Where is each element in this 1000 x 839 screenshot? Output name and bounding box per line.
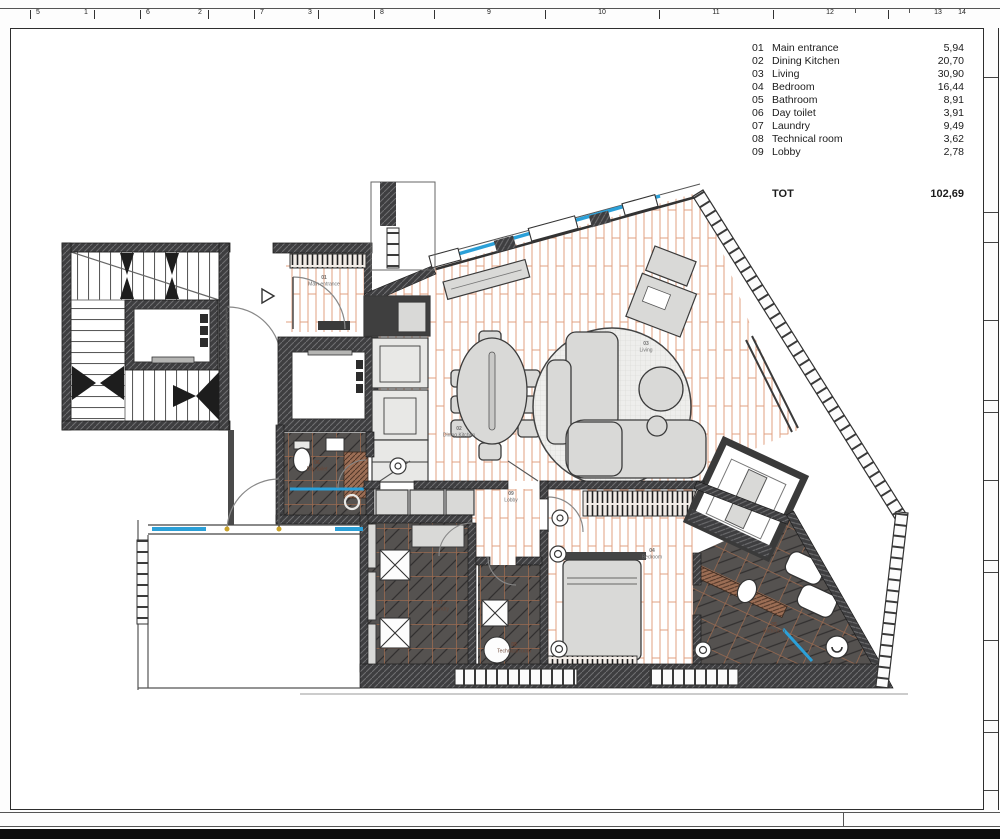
legend-name: Lobby	[772, 146, 944, 158]
room-label-number: 04	[649, 548, 655, 554]
room-label-name: Lobby	[504, 498, 518, 504]
room-label-name: Laundry	[431, 607, 450, 613]
legend-area: 2,78	[944, 146, 964, 158]
radiator-2	[650, 669, 738, 685]
room-label-name: Dining Kitchen	[443, 433, 475, 439]
legend-area: 16,44	[938, 81, 964, 93]
shower-head	[826, 636, 848, 658]
legend-no: 09	[752, 146, 772, 158]
legend-total-value: 102,69	[930, 188, 964, 200]
drawing-sheet: 516273891011121314	[0, 0, 1000, 839]
legend-name: Bedroom	[772, 81, 938, 93]
room-label-name: Bathroom	[763, 629, 785, 635]
legend-area: 3,91	[944, 107, 964, 119]
headboard	[558, 552, 646, 560]
room-label-number: 08	[511, 642, 517, 648]
legend-row: 06Day toilet3,91	[752, 107, 964, 120]
sink-small	[326, 438, 344, 451]
room-label-number: 07	[437, 600, 443, 606]
marker-circle	[552, 510, 568, 526]
elevator-2-door	[308, 350, 352, 355]
legend-row: 01Main entrance5,94	[752, 42, 964, 55]
room-label-number: 01	[321, 275, 327, 281]
spotlight	[550, 546, 566, 562]
terrace-door-arc	[227, 479, 279, 531]
room-label-name: Bedroom	[642, 555, 662, 561]
legend-row: 07Laundry9,49	[752, 120, 964, 133]
legend-area: 9,49	[944, 120, 964, 132]
legend-row: 09Lobby2,78	[752, 146, 964, 159]
legend-area: 3,62	[944, 133, 964, 145]
pouf	[647, 416, 667, 436]
bed	[563, 560, 641, 660]
terrace-railing	[137, 540, 148, 624]
elevator-1	[125, 300, 218, 370]
legend-no: 04	[752, 81, 772, 93]
legend-name: Main entrance	[772, 42, 944, 54]
stairwell	[62, 243, 230, 430]
corridor-door-arc	[228, 307, 281, 360]
legend-total-label: TOT	[772, 188, 930, 200]
elevator-2	[278, 337, 378, 432]
legend-no: 08	[752, 133, 772, 145]
legend-area: 5,94	[944, 42, 964, 54]
entrance-arrow-icon	[262, 289, 274, 303]
armchair	[639, 367, 683, 411]
legend-name: Bathroom	[772, 94, 944, 106]
room-label-number: 09	[508, 491, 514, 497]
radiator-1	[455, 669, 577, 685]
legend-name: Living	[772, 68, 938, 80]
legend-row: 03Living30,90	[752, 68, 964, 81]
terrace-parapet	[138, 520, 360, 690]
lobby-sideboard	[376, 490, 474, 515]
legend-row: 04Bedroom16,44	[752, 81, 964, 94]
legend-area: 30,90	[938, 68, 964, 80]
wardrobe	[583, 491, 695, 516]
marker-circle	[390, 458, 406, 474]
hinge-dot-1	[225, 527, 230, 532]
spotlight	[551, 641, 567, 657]
stair-flight-left	[71, 300, 125, 421]
legend-name: Dining Kitchen	[772, 55, 938, 67]
legend-no: 05	[752, 94, 772, 106]
wall-bottom	[360, 664, 893, 688]
room-label-number: 03	[643, 341, 649, 347]
elevator-1-door	[152, 357, 194, 363]
legend-no: 01	[752, 42, 772, 54]
kitchen-counter-2	[372, 390, 428, 440]
wall-top-entrance	[273, 243, 372, 253]
legend-no: 03	[752, 68, 772, 80]
entrance-closet	[290, 254, 366, 268]
legend-no: 02	[752, 55, 772, 67]
room-label-number: 05	[771, 622, 777, 628]
legend-name: Laundry	[772, 120, 944, 132]
room-label-number: 06	[314, 460, 320, 466]
legend-row: 02Dining Kitchen20,70	[752, 55, 964, 68]
area-legend: 01Main entrance5,9402Dining Kitchen20,70…	[752, 42, 964, 202]
legend-area: 20,70	[938, 55, 964, 67]
legend-name: Technical room	[772, 133, 944, 145]
legend-total-row: TOT 102,69	[752, 188, 964, 202]
room-label-name: Technical room	[497, 649, 531, 655]
room-label-name: Day toilet	[307, 467, 328, 473]
legend-row: 08Technical room3,62	[752, 133, 964, 146]
legend-no: 06	[752, 107, 772, 119]
room-label-number: 02	[456, 426, 462, 432]
railing-se	[876, 512, 908, 688]
legend-name: Day toilet	[772, 107, 944, 119]
legend-no: 07	[752, 120, 772, 132]
room-label-name: Living	[639, 348, 652, 354]
room-label-name: Main entrance	[308, 282, 340, 288]
legend-row: 05Bathroom8,91	[752, 94, 964, 107]
spotlight	[695, 642, 711, 658]
legend-area: 8,91	[944, 94, 964, 106]
hinge-dot-2	[277, 527, 282, 532]
